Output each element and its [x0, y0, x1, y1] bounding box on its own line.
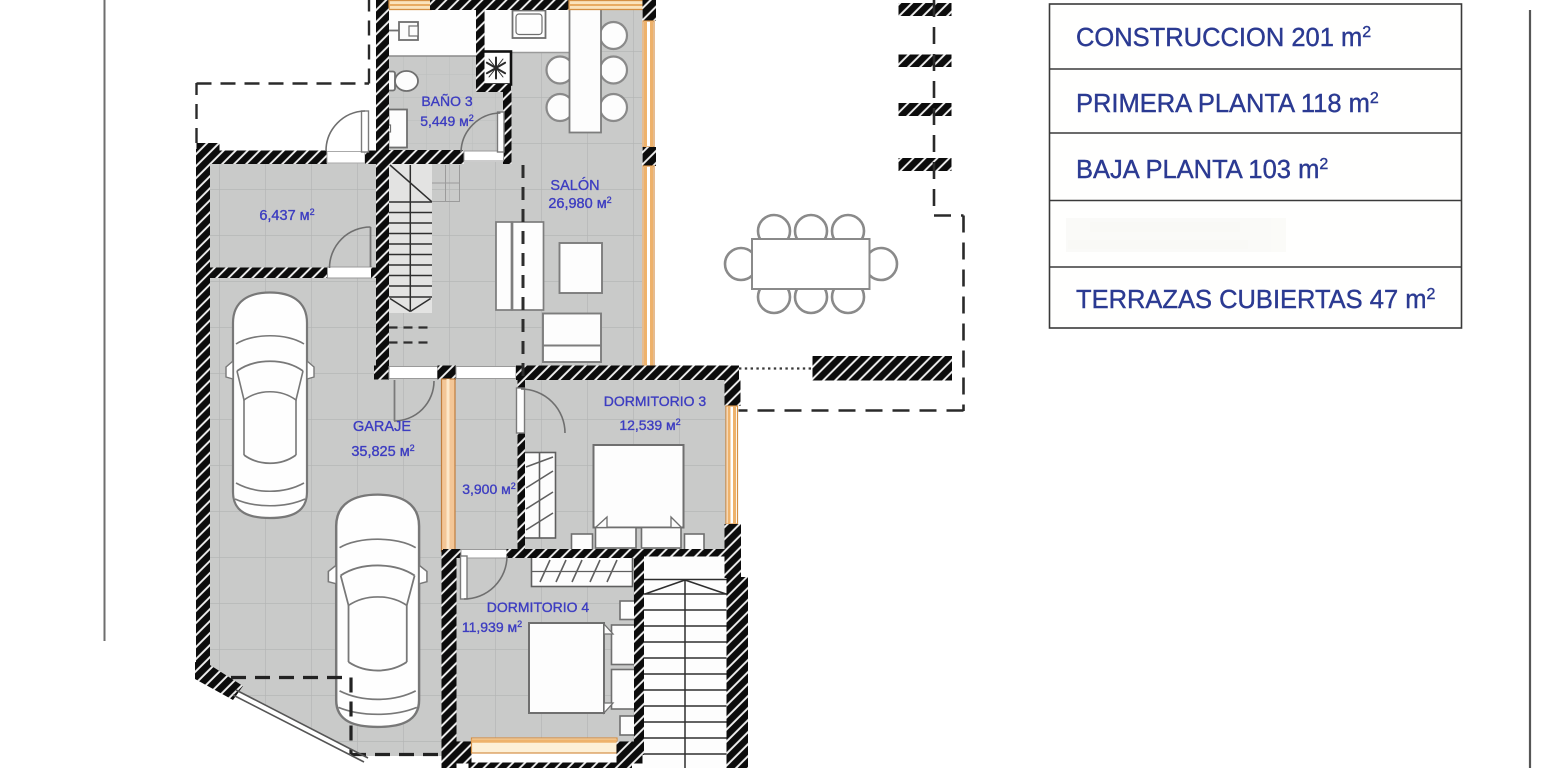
- svg-text:TERRAZAS CUBIERTAS 47 m2: TERRAZAS CUBIERTAS 47 m2: [1076, 286, 1435, 314]
- svg-text:6,437 м2: 6,437 м2: [259, 207, 314, 224]
- svg-text:PRIMERA PLANTA 118 m2: PRIMERA PLANTA 118 m2: [1076, 90, 1379, 118]
- svg-text:12,539 м2: 12,539 м2: [619, 417, 680, 433]
- svg-text:DORMITORIO 3: DORMITORIO 3: [604, 393, 707, 409]
- svg-text:BAJA PLANTA 103 m2: BAJA PLANTA 103 m2: [1076, 156, 1328, 184]
- svg-text:DORMITORIO 4: DORMITORIO 4: [487, 599, 590, 615]
- svg-text:3,900 м2: 3,900 м2: [462, 481, 516, 497]
- svg-text:11,939 м2: 11,939 м2: [462, 619, 522, 635]
- svg-text:SALÓN: SALÓN: [550, 177, 599, 194]
- svg-text:CONSTRUCCION 201 m2: CONSTRUCCION 201 m2: [1076, 24, 1371, 52]
- svg-text:35,825 м2: 35,825 м2: [351, 443, 414, 460]
- svg-text:BAÑO 3: BAÑO 3: [421, 93, 473, 109]
- svg-text:GARAJE: GARAJE: [353, 419, 411, 435]
- svg-text:5,449 м2: 5,449 м2: [420, 113, 474, 129]
- svg-text:26,980 м2: 26,980 м2: [548, 195, 611, 212]
